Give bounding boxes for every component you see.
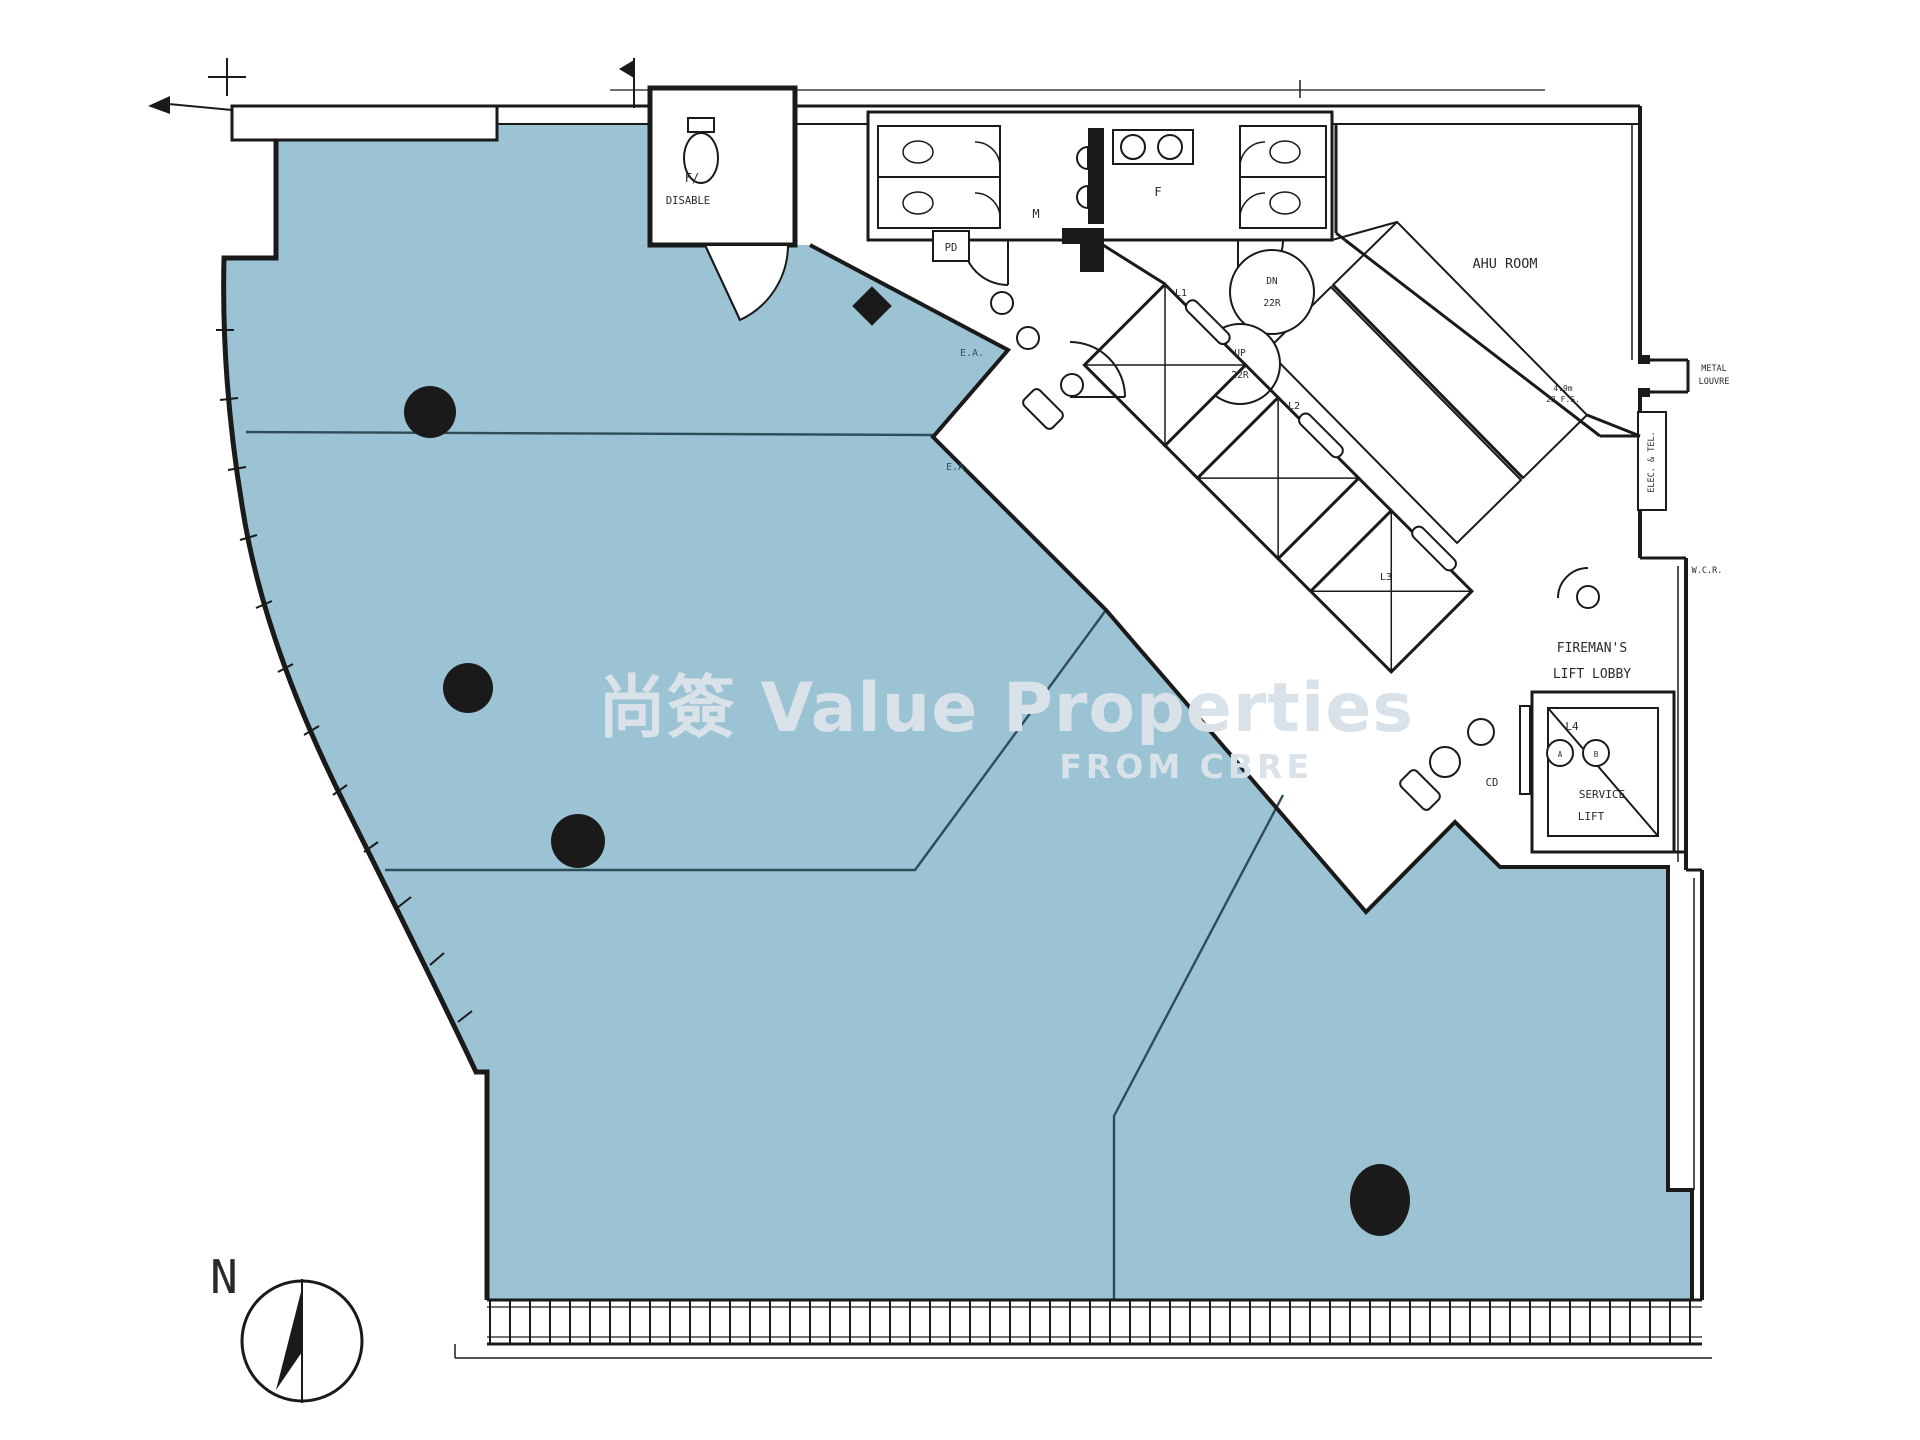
- floorplan-page: F/ DISABLE PD M F AHU ROOM DN 22R UP 22R…: [0, 0, 1920, 1440]
- label-stair-up-r: 22R: [1231, 370, 1248, 381]
- label-cd: CD: [1486, 777, 1499, 789]
- disabled-toilet-room: [650, 88, 795, 245]
- watermark-line-1: 尚簽 Value Properties: [598, 669, 1414, 748]
- label-service-lift-2: LIFT: [1578, 810, 1605, 823]
- label-fireman-lobby-1: FIREMAN'S: [1557, 641, 1627, 656]
- label-lift-1: L1: [1175, 288, 1187, 299]
- label-disabled-toilet-1: F/: [685, 171, 699, 185]
- label-lift-b: B: [1594, 750, 1599, 759]
- label-stair-up: UP: [1234, 348, 1246, 359]
- label-elec-tel: ELEC. & TEL.: [1647, 431, 1657, 492]
- label-dim-2: 23 F.S.: [1546, 395, 1580, 404]
- label-lift-4: L4: [1565, 720, 1579, 733]
- top-wall-band: [232, 106, 497, 140]
- label-pd: PD: [945, 242, 958, 254]
- label-fireman-lobby-2: LIFT LOBBY: [1553, 667, 1631, 682]
- label-stair-dn-r: 22R: [1263, 298, 1280, 309]
- column-dot: [1350, 1164, 1410, 1236]
- label-stair-dn: DN: [1266, 276, 1278, 287]
- label-north: N: [210, 1250, 238, 1304]
- label-dim-1: 4.9m: [1553, 384, 1572, 393]
- lift-l3: [1311, 504, 1479, 672]
- lift-l2: [1198, 390, 1366, 558]
- label-louvre-1: METAL: [1701, 364, 1727, 374]
- label-ahu-room: AHU ROOM: [1472, 256, 1537, 272]
- label-disabled-toilet-2: DISABLE: [666, 195, 710, 207]
- label-wcr: W.C.R.: [1692, 566, 1723, 576]
- label-service-lift-1: SERVICE: [1579, 788, 1625, 801]
- label-lift-2: L2: [1288, 401, 1300, 412]
- watermark-line-2: FROM CBRE: [1059, 747, 1313, 786]
- label-ea-2: E.A.: [946, 462, 970, 473]
- stair-column-dn: [1230, 250, 1314, 334]
- label-louvre-2: LOUVRE: [1699, 377, 1730, 387]
- column-dot: [404, 386, 456, 438]
- label-male-toilet: M: [1032, 207, 1039, 221]
- lift-l1: [1084, 277, 1252, 445]
- ahu-room: [1336, 124, 1640, 436]
- north-arrow-icon: [242, 1279, 362, 1403]
- label-lift-3: L3: [1380, 572, 1392, 583]
- label-female-toilet: F: [1154, 185, 1161, 199]
- column-dot: [551, 814, 605, 868]
- floorplan-drawing: F/ DISABLE PD M F AHU ROOM DN 22R UP 22R…: [0, 0, 1920, 1440]
- label-lift-a: A: [1558, 750, 1563, 759]
- column-dot: [443, 663, 493, 713]
- label-ea-1: E.A.: [960, 348, 984, 359]
